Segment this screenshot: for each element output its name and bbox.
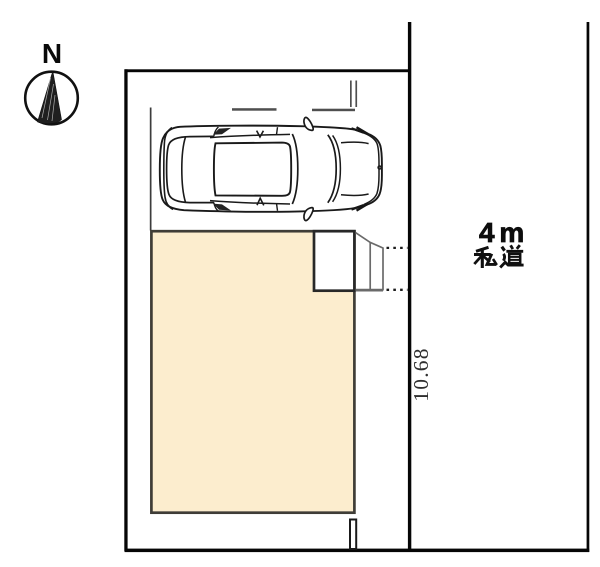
svg-text:4 m: 4 m — [479, 217, 523, 248]
svg-text:10.68: 10.68 — [409, 347, 433, 401]
svg-text:N: N — [42, 38, 62, 69]
